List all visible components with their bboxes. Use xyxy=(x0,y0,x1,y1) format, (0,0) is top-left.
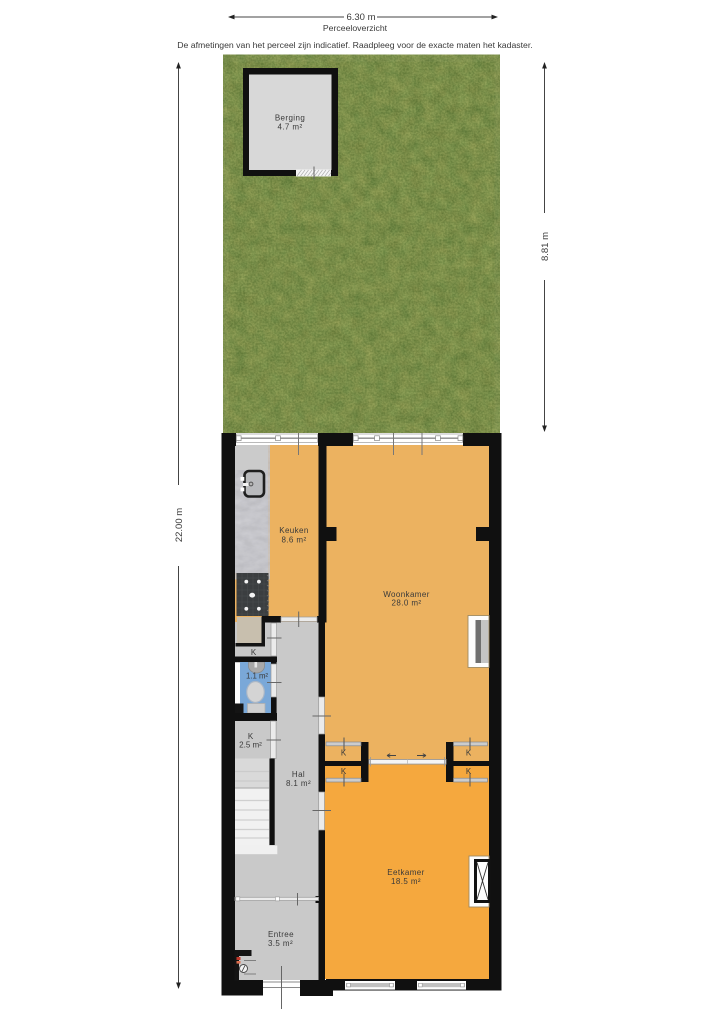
svg-text:K: K xyxy=(341,749,347,758)
svg-text:8.81 m: 8.81 m xyxy=(540,232,551,261)
svg-text:Berging: Berging xyxy=(275,114,305,123)
svg-text:1.1 m²: 1.1 m² xyxy=(246,672,268,681)
svg-text:De afmetingen van het perceel: De afmetingen van het perceel zijn indic… xyxy=(177,40,532,50)
svg-text:Keuken: Keuken xyxy=(279,526,309,535)
svg-text:8.6 m²: 8.6 m² xyxy=(281,536,306,545)
svg-text:K: K xyxy=(341,767,347,776)
svg-text:Eetkamer: Eetkamer xyxy=(387,868,424,877)
svg-text:18.5 m²: 18.5 m² xyxy=(391,877,421,886)
svg-text:Entree: Entree xyxy=(268,930,294,939)
svg-text:Hal: Hal xyxy=(292,770,305,779)
svg-text:K: K xyxy=(251,648,257,657)
svg-text:3.5 m²: 3.5 m² xyxy=(268,939,293,948)
svg-text:22.00 m: 22.00 m xyxy=(174,508,185,542)
svg-text:K: K xyxy=(466,749,472,758)
svg-text:28.0 m²: 28.0 m² xyxy=(392,599,422,608)
svg-text:8.1 m²: 8.1 m² xyxy=(286,779,311,788)
svg-text:Perceeloverzicht: Perceeloverzicht xyxy=(323,23,388,33)
svg-text:2.5 m²: 2.5 m² xyxy=(239,741,262,750)
svg-text:4.7 m²: 4.7 m² xyxy=(277,123,302,132)
svg-text:6.30 m: 6.30 m xyxy=(346,12,375,23)
svg-text:K: K xyxy=(466,767,472,776)
